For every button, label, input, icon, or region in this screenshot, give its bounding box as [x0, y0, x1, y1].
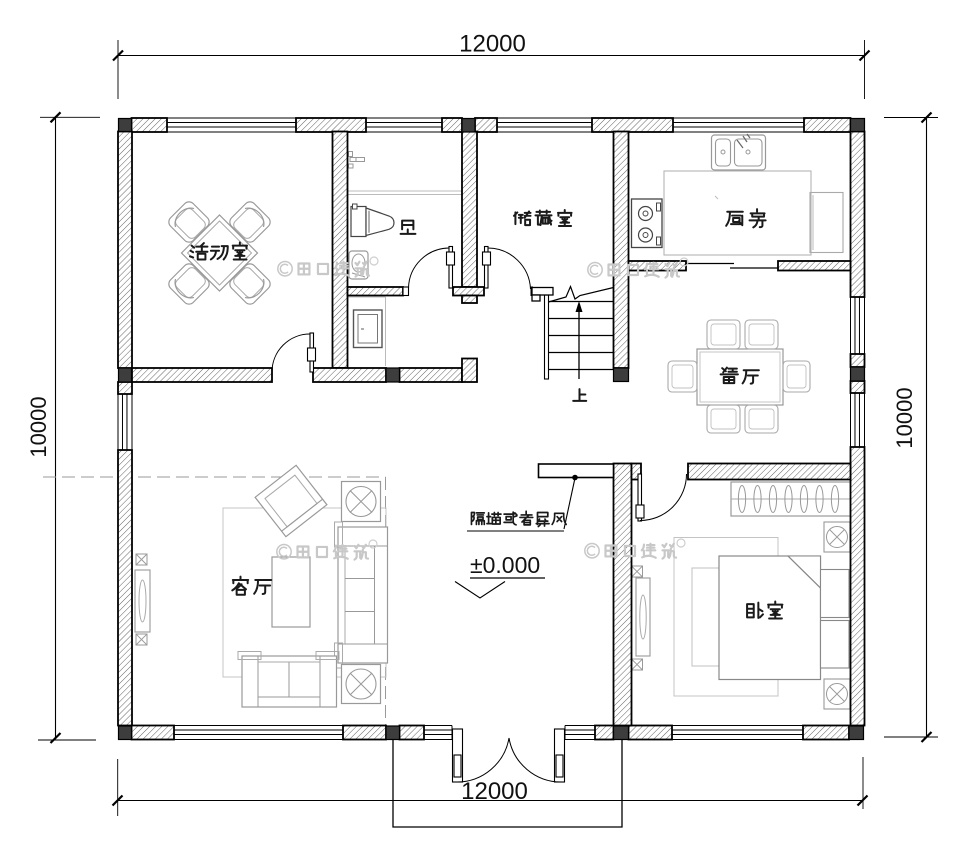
svg-text:±0.000: ±0.000 [470, 552, 540, 578]
svg-text:12000: 12000 [461, 778, 528, 805]
svg-text:10000: 10000 [26, 396, 51, 457]
svg-text:12000: 12000 [459, 31, 526, 58]
svg-text:10000: 10000 [892, 387, 917, 448]
